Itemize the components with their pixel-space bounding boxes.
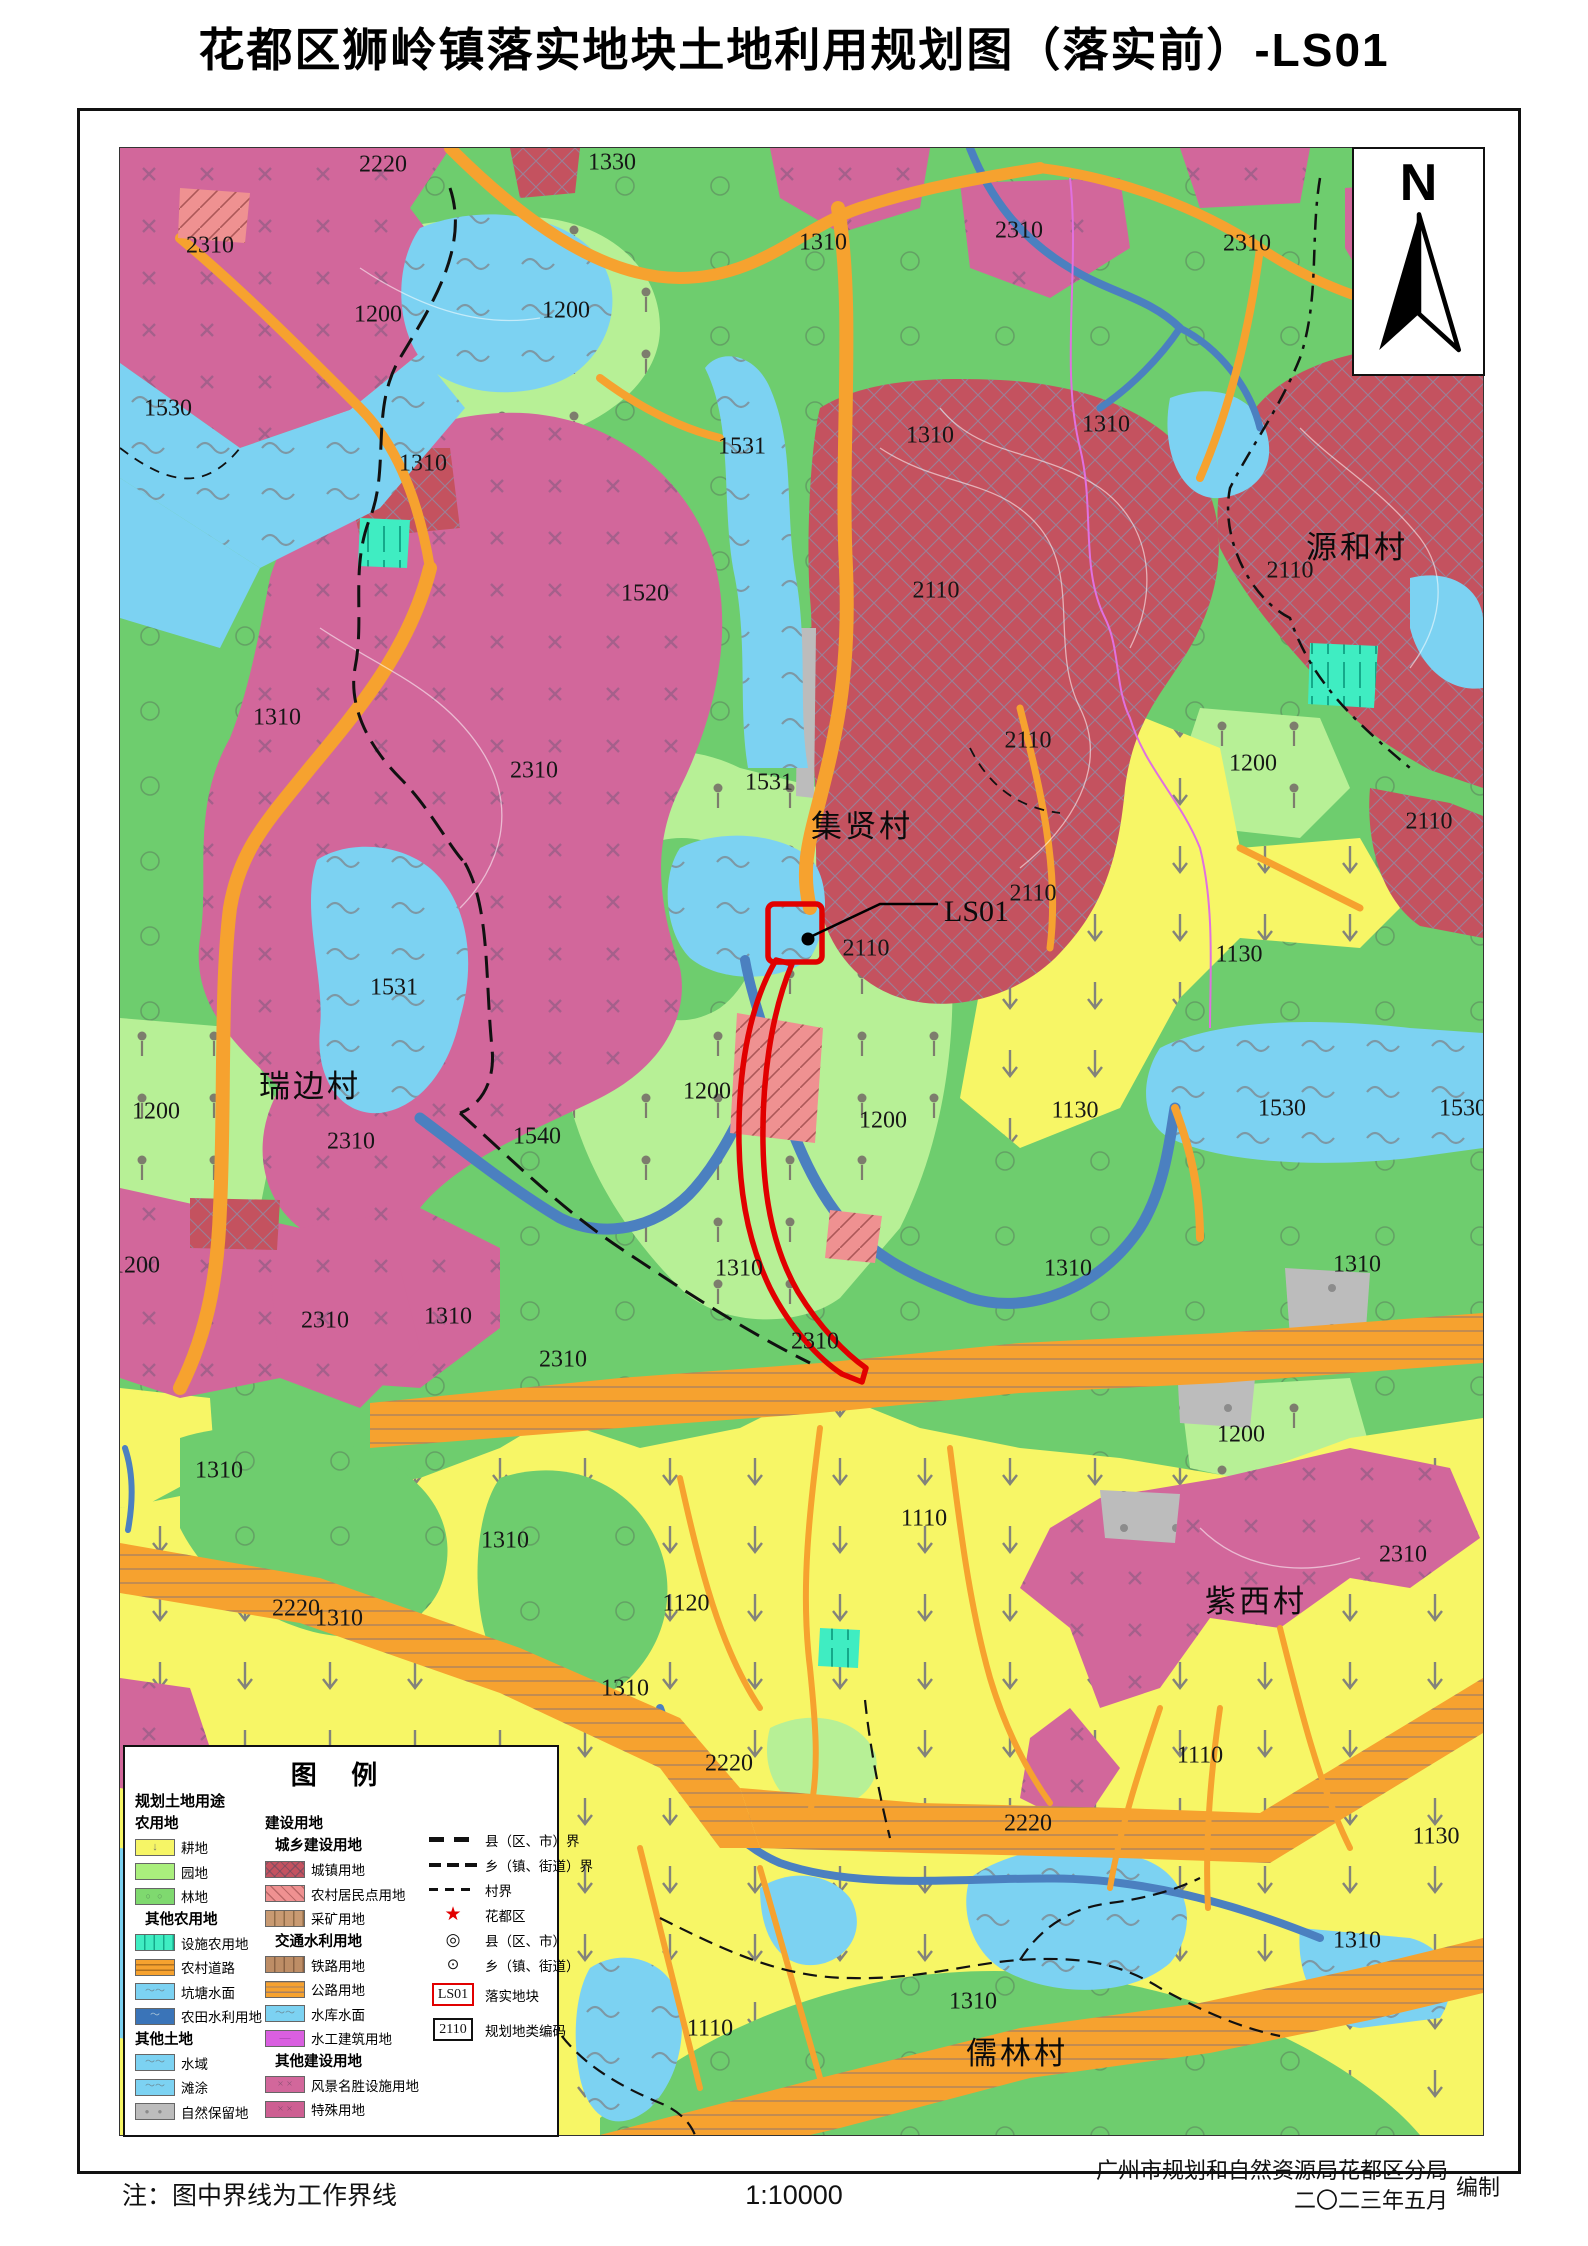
- land-code-label: 1200: [1229, 751, 1277, 777]
- legend-section-header: 建设用地: [265, 1813, 423, 1835]
- land-code-label: 1120: [662, 1591, 709, 1617]
- legend-item-label: 农田水利用地: [181, 2006, 262, 2026]
- legend-item-label: 设施农用地: [181, 1933, 249, 1953]
- land-code-label: 1310: [315, 1606, 363, 1632]
- legend-item: 园地: [135, 1860, 263, 1885]
- land-code-label: 1530: [1439, 1096, 1483, 1122]
- legend-section-header: 其他土地: [135, 2029, 263, 2051]
- flats-swatch: [135, 2079, 175, 2096]
- legend-symbol-label: 县（区、市）界: [485, 1830, 580, 1850]
- land-code-label: 1540: [513, 1124, 561, 1150]
- land-code-label: 1110: [687, 2016, 733, 2042]
- legend: 图 例 规划土地用途 农用地耕地园地林地其他农用地设施农用地农村道路坑塘水面农田…: [123, 1745, 559, 2137]
- legend-item: 采矿用地: [265, 1906, 423, 1931]
- code-box-icon: 2110: [427, 2018, 479, 2042]
- land-code-label: 1310: [601, 1676, 649, 1702]
- county-pt-icon: ◎: [427, 1930, 479, 1950]
- land-code-label: 2220: [272, 1596, 320, 1622]
- legend-col-agriculture: 农用地耕地园地林地其他农用地设施农用地农村道路坑塘水面农田水利用地其他土地水域滩…: [135, 1813, 263, 2124]
- village-res-swatch: [265, 1885, 305, 1902]
- legend-symbol-item: LS01落实地块: [427, 1977, 565, 2012]
- village-name-label: 儒林村: [966, 2036, 1068, 2071]
- hydraulic-swatch: [265, 2030, 305, 2047]
- legend-item: 坑塘水面: [135, 1980, 263, 2005]
- land-code-label: 1310: [195, 1458, 243, 1484]
- legend-symbol-label: 落实地块: [485, 1985, 539, 2005]
- legend-item: 铁路用地: [265, 1953, 423, 1978]
- rural-road-swatch: [135, 1959, 175, 1976]
- land-code-label: 2310: [791, 1329, 839, 1355]
- land-code-label: 1310: [906, 423, 954, 449]
- highway-swatch: [265, 1981, 305, 1998]
- land-code-label: 1530: [144, 396, 192, 422]
- legend-item: 水库水面: [265, 2002, 423, 2027]
- legend-item: 特殊用地: [265, 2097, 423, 2122]
- legend-item-label: 农村居民点用地: [311, 1884, 406, 1904]
- land-code-label: 1310: [481, 1528, 529, 1554]
- legend-symbol-label: 乡（镇、街道）: [485, 1955, 580, 1975]
- land-code-label: 2310: [1223, 231, 1271, 257]
- star-icon: ★: [427, 1903, 479, 1926]
- land-code-label: 1310: [799, 230, 847, 256]
- land-code-label: 1310: [1333, 1928, 1381, 1954]
- land-code-label: 1531: [718, 434, 766, 460]
- land-code-label: 2310: [1379, 1542, 1427, 1568]
- legend-symbol-label: 乡（镇、街道）界: [485, 1855, 593, 1875]
- land-code-label: 1531: [745, 770, 793, 796]
- legend-section-header: 其他建设用地: [265, 2051, 423, 2073]
- land-code-label: 1310: [1333, 1252, 1381, 1278]
- land-code-label: 2310: [510, 758, 558, 784]
- ls01-label: LS01: [944, 895, 1009, 928]
- legend-item: 设施农用地: [135, 1931, 263, 1956]
- land-code-label: 1200: [683, 1079, 731, 1105]
- legend-symbol-item: 乡（镇、街道）界: [427, 1852, 565, 1877]
- land-code-label: 1531: [370, 975, 418, 1001]
- attribution: 广州市规划和自然资源局花都区分局 二〇二三年五月 编制: [1040, 2156, 1500, 2215]
- north-arrow-icon: [1364, 209, 1474, 359]
- land-code-label: 2110: [1004, 728, 1051, 754]
- legend-item: 自然保留地: [135, 2100, 263, 2125]
- land-code-label: 1110: [901, 1506, 947, 1532]
- ls01-anchor-dot: [802, 933, 815, 946]
- legend-symbol-label: 花都区: [485, 1905, 526, 1925]
- reservoir-swatch: [265, 2005, 305, 2022]
- land-code-label: 1310: [1082, 412, 1130, 438]
- land-code-label: 2310: [301, 1308, 349, 1334]
- land-code-label: 1200: [120, 1253, 160, 1279]
- facility-swatch: [135, 1934, 175, 1951]
- village-name-label: 瑞边村: [259, 1069, 361, 1104]
- land-code-label: 1310: [1044, 1256, 1092, 1282]
- legend-item-label: 采矿用地: [311, 1908, 365, 1928]
- legend-item: 耕地: [135, 1835, 263, 1860]
- village-line-icon: [427, 1888, 479, 1891]
- legend-symbol-item: ⊙乡（镇、街道）: [427, 1952, 565, 1977]
- land-code-label: 2110: [1405, 809, 1452, 835]
- legend-section-header: 交通水利用地: [265, 1931, 423, 1953]
- legend-section-header: 城乡建设用地: [265, 1835, 423, 1857]
- legend-header: 规划土地用途: [135, 1791, 225, 1813]
- legend-section-header: 农用地: [135, 1813, 263, 1835]
- legend-title: 图 例: [125, 1755, 557, 1792]
- legend-item: 林地: [135, 1884, 263, 1909]
- legend-item: 风景名胜设施用地: [265, 2073, 423, 2098]
- orchard-swatch: [135, 1863, 175, 1880]
- land-code-label: 2220: [359, 152, 407, 178]
- crop-swatch: [135, 1839, 175, 1856]
- legend-item-label: 水库水面: [311, 2004, 365, 2024]
- land-code-label: 1310: [399, 451, 447, 477]
- legend-item-label: 水域: [181, 2053, 208, 2073]
- land-code-label: 1530: [1258, 1096, 1306, 1122]
- legend-item: 水域: [135, 2051, 263, 2076]
- legend-item-label: 铁路用地: [311, 1955, 365, 1975]
- irrigation-swatch: [135, 2008, 175, 2025]
- legend-item-label: 公路用地: [311, 1979, 365, 1999]
- scenic-swatch: [265, 2076, 305, 2093]
- legend-item: 水工建筑用地: [265, 2026, 423, 2051]
- land-code-label: 1200: [132, 1099, 180, 1125]
- land-code-label: 1110: [1177, 1743, 1223, 1769]
- land-code-label: 2110: [1009, 881, 1056, 907]
- legend-item-label: 滩涂: [181, 2077, 208, 2097]
- legend-item-label: 耕地: [181, 1837, 208, 1857]
- legend-item-label: 水工建筑用地: [311, 2028, 392, 2048]
- legend-item-label: 城镇用地: [311, 1859, 365, 1879]
- village-name-label: 集贤村: [811, 809, 913, 844]
- attribution-agency: 广州市规划和自然资源局花都区分局: [1040, 2156, 1448, 2186]
- legend-item: 滩涂: [135, 2075, 263, 2100]
- legend-symbol-item: 村界: [427, 1877, 565, 1902]
- legend-item: 农村居民点用地: [265, 1882, 423, 1907]
- land-code-label: 1310: [424, 1304, 472, 1330]
- legend-item-label: 自然保留地: [181, 2102, 249, 2122]
- legend-col-construction: 建设用地城乡建设用地城镇用地农村居民点用地采矿用地交通水利用地铁路用地公路用地水…: [265, 1813, 423, 2122]
- legend-symbol-item: ◎县（区、市）: [427, 1927, 565, 1952]
- town-pt-icon: ⊙: [427, 1955, 479, 1974]
- legend-item: 农村道路: [135, 1955, 263, 1980]
- mining-swatch: [265, 1910, 305, 1927]
- north-label: N: [1400, 157, 1438, 209]
- land-code-label: 1200: [354, 302, 402, 328]
- legend-item-label: 特殊用地: [311, 2099, 365, 2119]
- land-code-label: 2310: [186, 233, 234, 259]
- county-line-icon: [427, 1837, 479, 1842]
- legend-symbol-label: 规划地类编码: [485, 2020, 566, 2040]
- legend-item: 公路用地: [265, 1977, 423, 2002]
- legend-item-label: 园地: [181, 1862, 208, 1882]
- land-code-label: 2310: [995, 218, 1043, 244]
- urban-swatch: [265, 1861, 305, 1878]
- legend-item: 城镇用地: [265, 1857, 423, 1882]
- land-code-label: 1310: [949, 1989, 997, 2015]
- legend-item-label: 坑塘水面: [181, 1982, 235, 2002]
- footer-note: 注：图中界线为工作界线: [122, 2176, 397, 2212]
- land-code-label: 1310: [715, 1256, 763, 1282]
- legend-symbol-item: 县（区、市）界: [427, 1827, 565, 1852]
- land-code-label: 1130: [1412, 1824, 1459, 1850]
- village-name-label: 源和村: [1306, 530, 1408, 565]
- attribution-suffix: 编制: [1456, 2170, 1500, 2202]
- town-line-icon: [427, 1863, 479, 1867]
- land-code-label: 1130: [1051, 1098, 1098, 1124]
- land-code-label: 2220: [1004, 1811, 1052, 1837]
- nature-swatch: [135, 2103, 175, 2120]
- legend-symbol-label: 村界: [485, 1880, 512, 1900]
- land-code-label: 2110: [842, 936, 889, 962]
- land-code-label: 2110: [912, 578, 959, 604]
- land-code-label: 1200: [1217, 1422, 1265, 1448]
- water-swatch: [135, 2054, 175, 2071]
- special-swatch: [265, 2101, 305, 2118]
- planning-map-page: { "title": "花都区狮岭镇落实地块土地利用规划图（落实前）-LS01"…: [0, 0, 1588, 2246]
- land-code-label: 1200: [542, 298, 590, 324]
- legend-col-symbols: 县（区、市）界乡（镇、街道）界村界★花都区◎县（区、市）⊙乡（镇、街道）LS01…: [427, 1827, 565, 2047]
- legend-item: 农田水利用地: [135, 2004, 263, 2029]
- land-code-label: 1200: [859, 1108, 907, 1134]
- north-arrow-box: N: [1352, 147, 1485, 376]
- legend-item-label: 风景名胜设施用地: [311, 2075, 419, 2095]
- land-code-label: 2310: [539, 1347, 587, 1373]
- map-scale: 1:10000: [694, 2180, 894, 2211]
- legend-item-label: 农村道路: [181, 1957, 235, 1977]
- land-code-label: 1330: [588, 150, 636, 176]
- forest-swatch: [135, 1888, 175, 1905]
- land-code-label: 1310: [253, 705, 301, 731]
- legend-section-header: 其他农用地: [135, 1909, 263, 1931]
- page-title: 花都区狮岭镇落实地块土地利用规划图（落实前）-LS01: [0, 14, 1588, 80]
- village-name-label: 紫西村: [1205, 1584, 1307, 1619]
- land-code-label: 1520: [621, 581, 669, 607]
- land-code-label: 1130: [1215, 942, 1262, 968]
- pond-swatch: [135, 1983, 175, 2000]
- railway-swatch: [265, 1956, 305, 1973]
- legend-item-label: 林地: [181, 1886, 208, 1906]
- land-code-label: 2310: [327, 1129, 375, 1155]
- legend-symbol-label: 县（区、市）: [485, 1930, 566, 1950]
- legend-symbol-item: ★花都区: [427, 1902, 565, 1927]
- attribution-date: 二〇二三年五月: [1040, 2186, 1448, 2216]
- legend-symbol-item: 2110规划地类编码: [427, 2012, 565, 2047]
- land-code-label: 2220: [705, 1751, 753, 1777]
- ls01-box-icon: LS01: [427, 1983, 479, 2007]
